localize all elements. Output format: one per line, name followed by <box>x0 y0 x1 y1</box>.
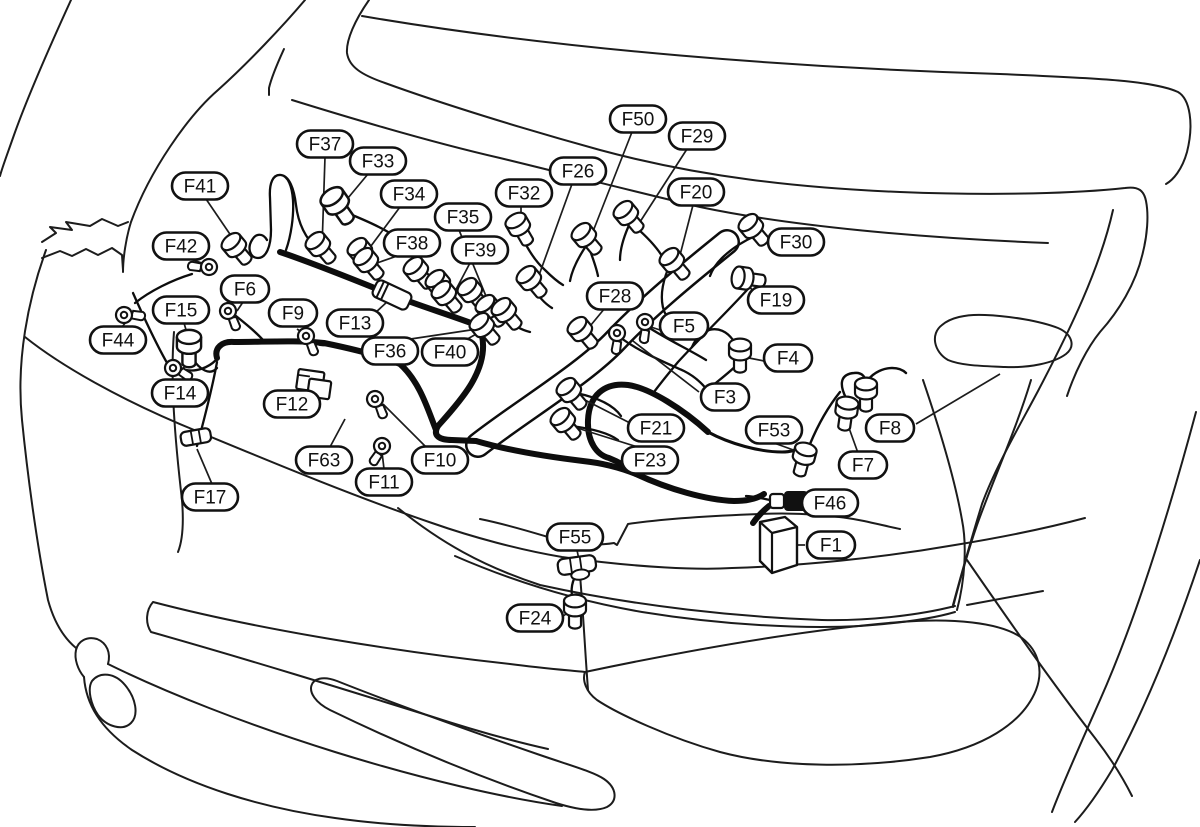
svg-text:F1: F1 <box>820 536 842 557</box>
svg-text:F38: F38 <box>396 234 429 255</box>
svg-text:F34: F34 <box>393 185 426 206</box>
svg-text:F17: F17 <box>194 488 227 509</box>
svg-text:F14: F14 <box>164 384 197 405</box>
svg-text:F35: F35 <box>447 208 480 229</box>
svg-text:F5: F5 <box>673 317 695 338</box>
svg-text:F46: F46 <box>814 494 847 515</box>
svg-text:F36: F36 <box>374 342 407 363</box>
svg-text:F39: F39 <box>464 241 497 262</box>
svg-text:F32: F32 <box>508 184 541 205</box>
svg-text:F40: F40 <box>434 343 467 364</box>
svg-text:F55: F55 <box>559 528 592 549</box>
svg-text:F9: F9 <box>282 304 304 325</box>
svg-text:F6: F6 <box>234 280 256 301</box>
svg-text:F50: F50 <box>622 110 655 131</box>
svg-text:F24: F24 <box>519 609 552 630</box>
svg-text:F63: F63 <box>308 451 341 472</box>
svg-text:F28: F28 <box>599 287 632 308</box>
svg-text:F8: F8 <box>879 419 901 440</box>
svg-text:F7: F7 <box>852 456 874 477</box>
svg-text:F20: F20 <box>680 183 713 204</box>
svg-text:F29: F29 <box>681 127 714 148</box>
svg-text:F53: F53 <box>758 421 791 442</box>
svg-text:F21: F21 <box>640 419 673 440</box>
svg-text:F19: F19 <box>760 291 793 312</box>
svg-text:F3: F3 <box>714 388 736 409</box>
svg-text:F30: F30 <box>780 233 813 254</box>
svg-text:F10: F10 <box>424 451 457 472</box>
svg-text:F33: F33 <box>362 152 395 173</box>
svg-text:F41: F41 <box>184 177 217 198</box>
svg-text:F13: F13 <box>339 314 372 335</box>
svg-text:F26: F26 <box>562 162 595 183</box>
svg-text:F15: F15 <box>165 301 198 322</box>
svg-text:F23: F23 <box>634 451 667 472</box>
svg-text:F4: F4 <box>777 349 800 370</box>
svg-text:F37: F37 <box>309 135 342 156</box>
svg-text:F12: F12 <box>276 395 309 416</box>
svg-text:F11: F11 <box>368 473 399 494</box>
svg-text:F42: F42 <box>165 237 198 258</box>
svg-text:F44: F44 <box>102 331 135 352</box>
